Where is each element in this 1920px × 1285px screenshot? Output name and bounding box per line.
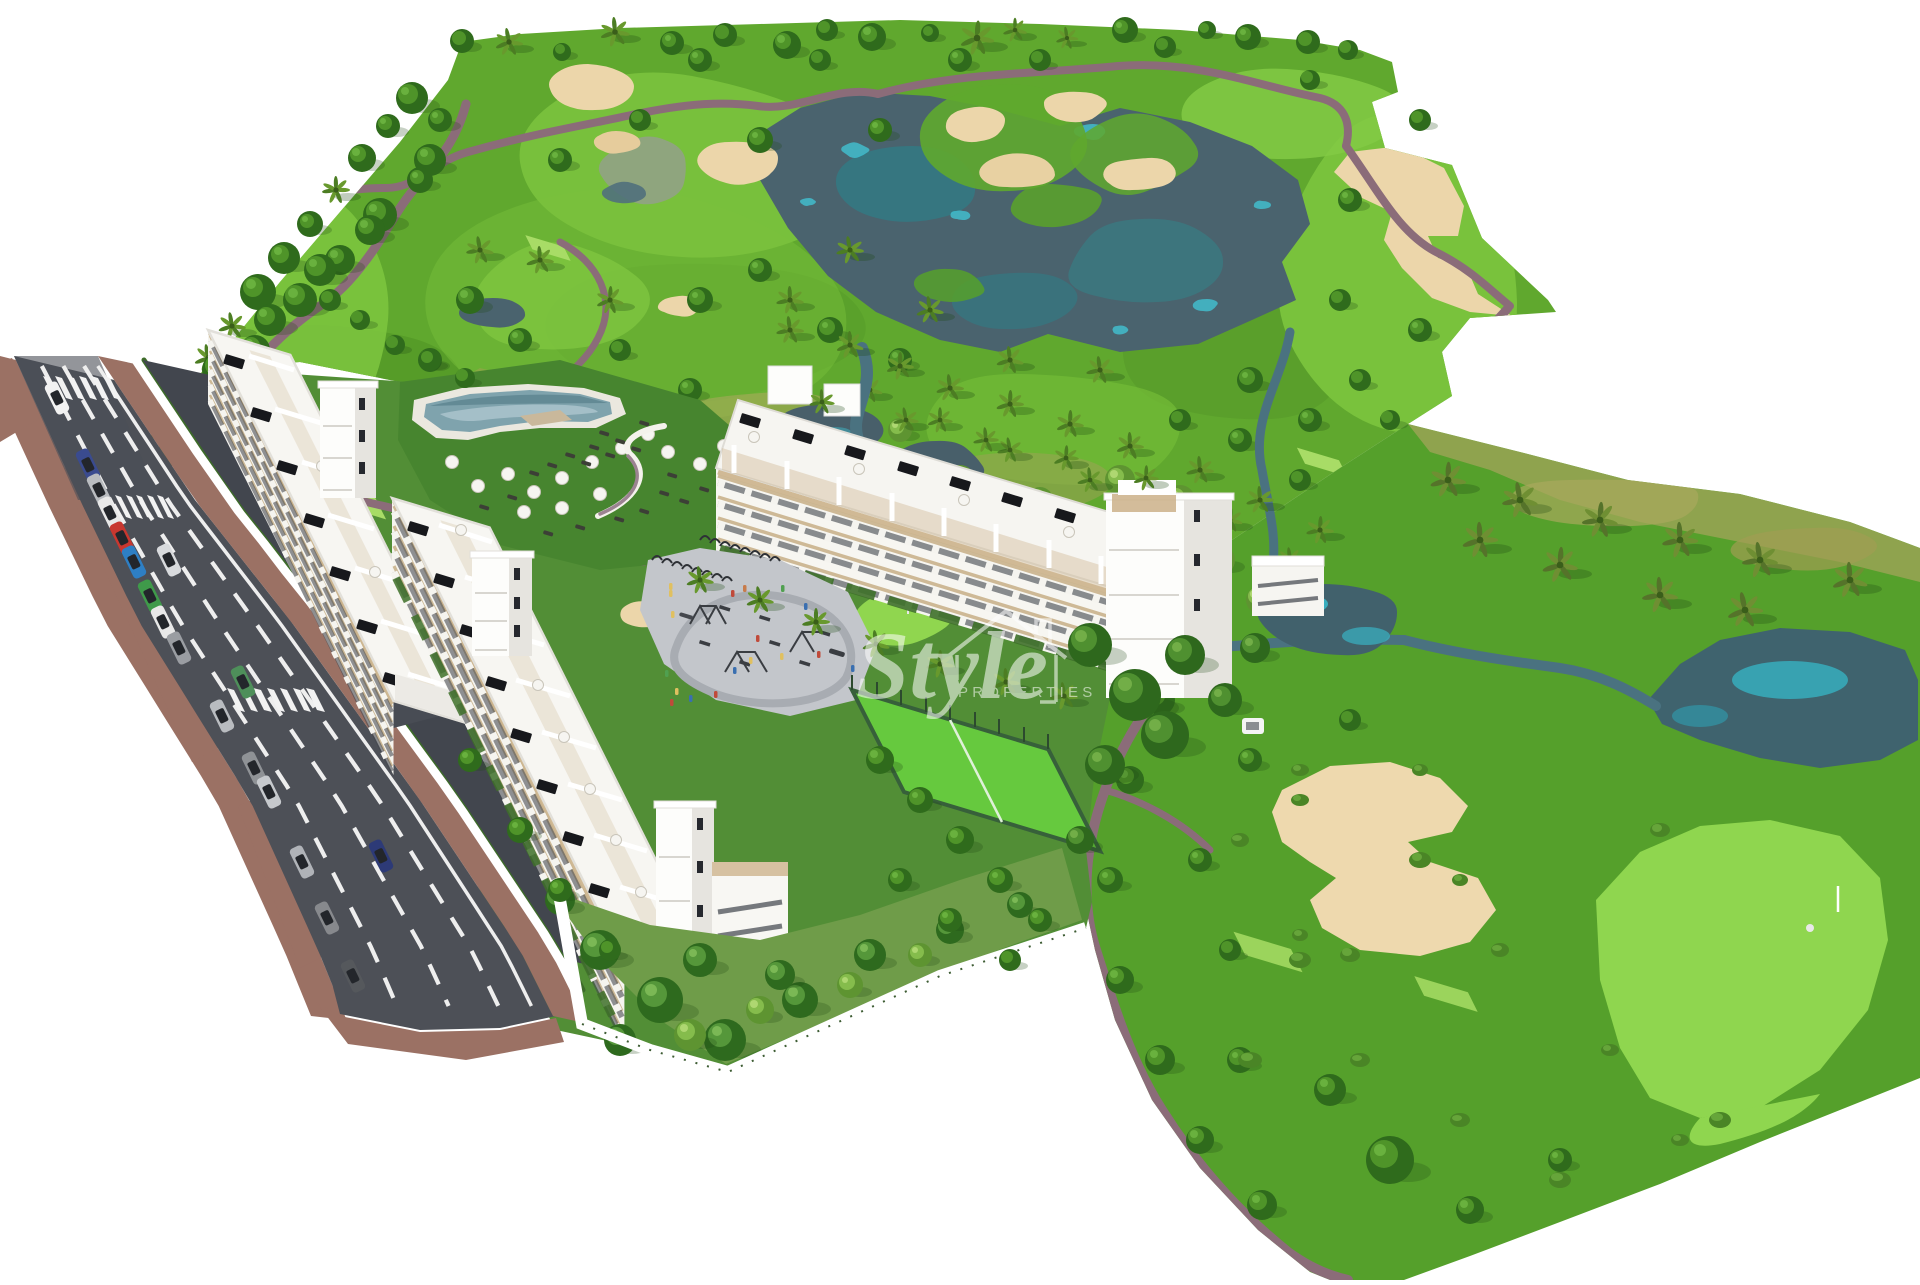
svg-text:Style: Style: [856, 612, 1048, 719]
svg-text:PROPERTIES: PROPERTIES: [958, 684, 1096, 701]
